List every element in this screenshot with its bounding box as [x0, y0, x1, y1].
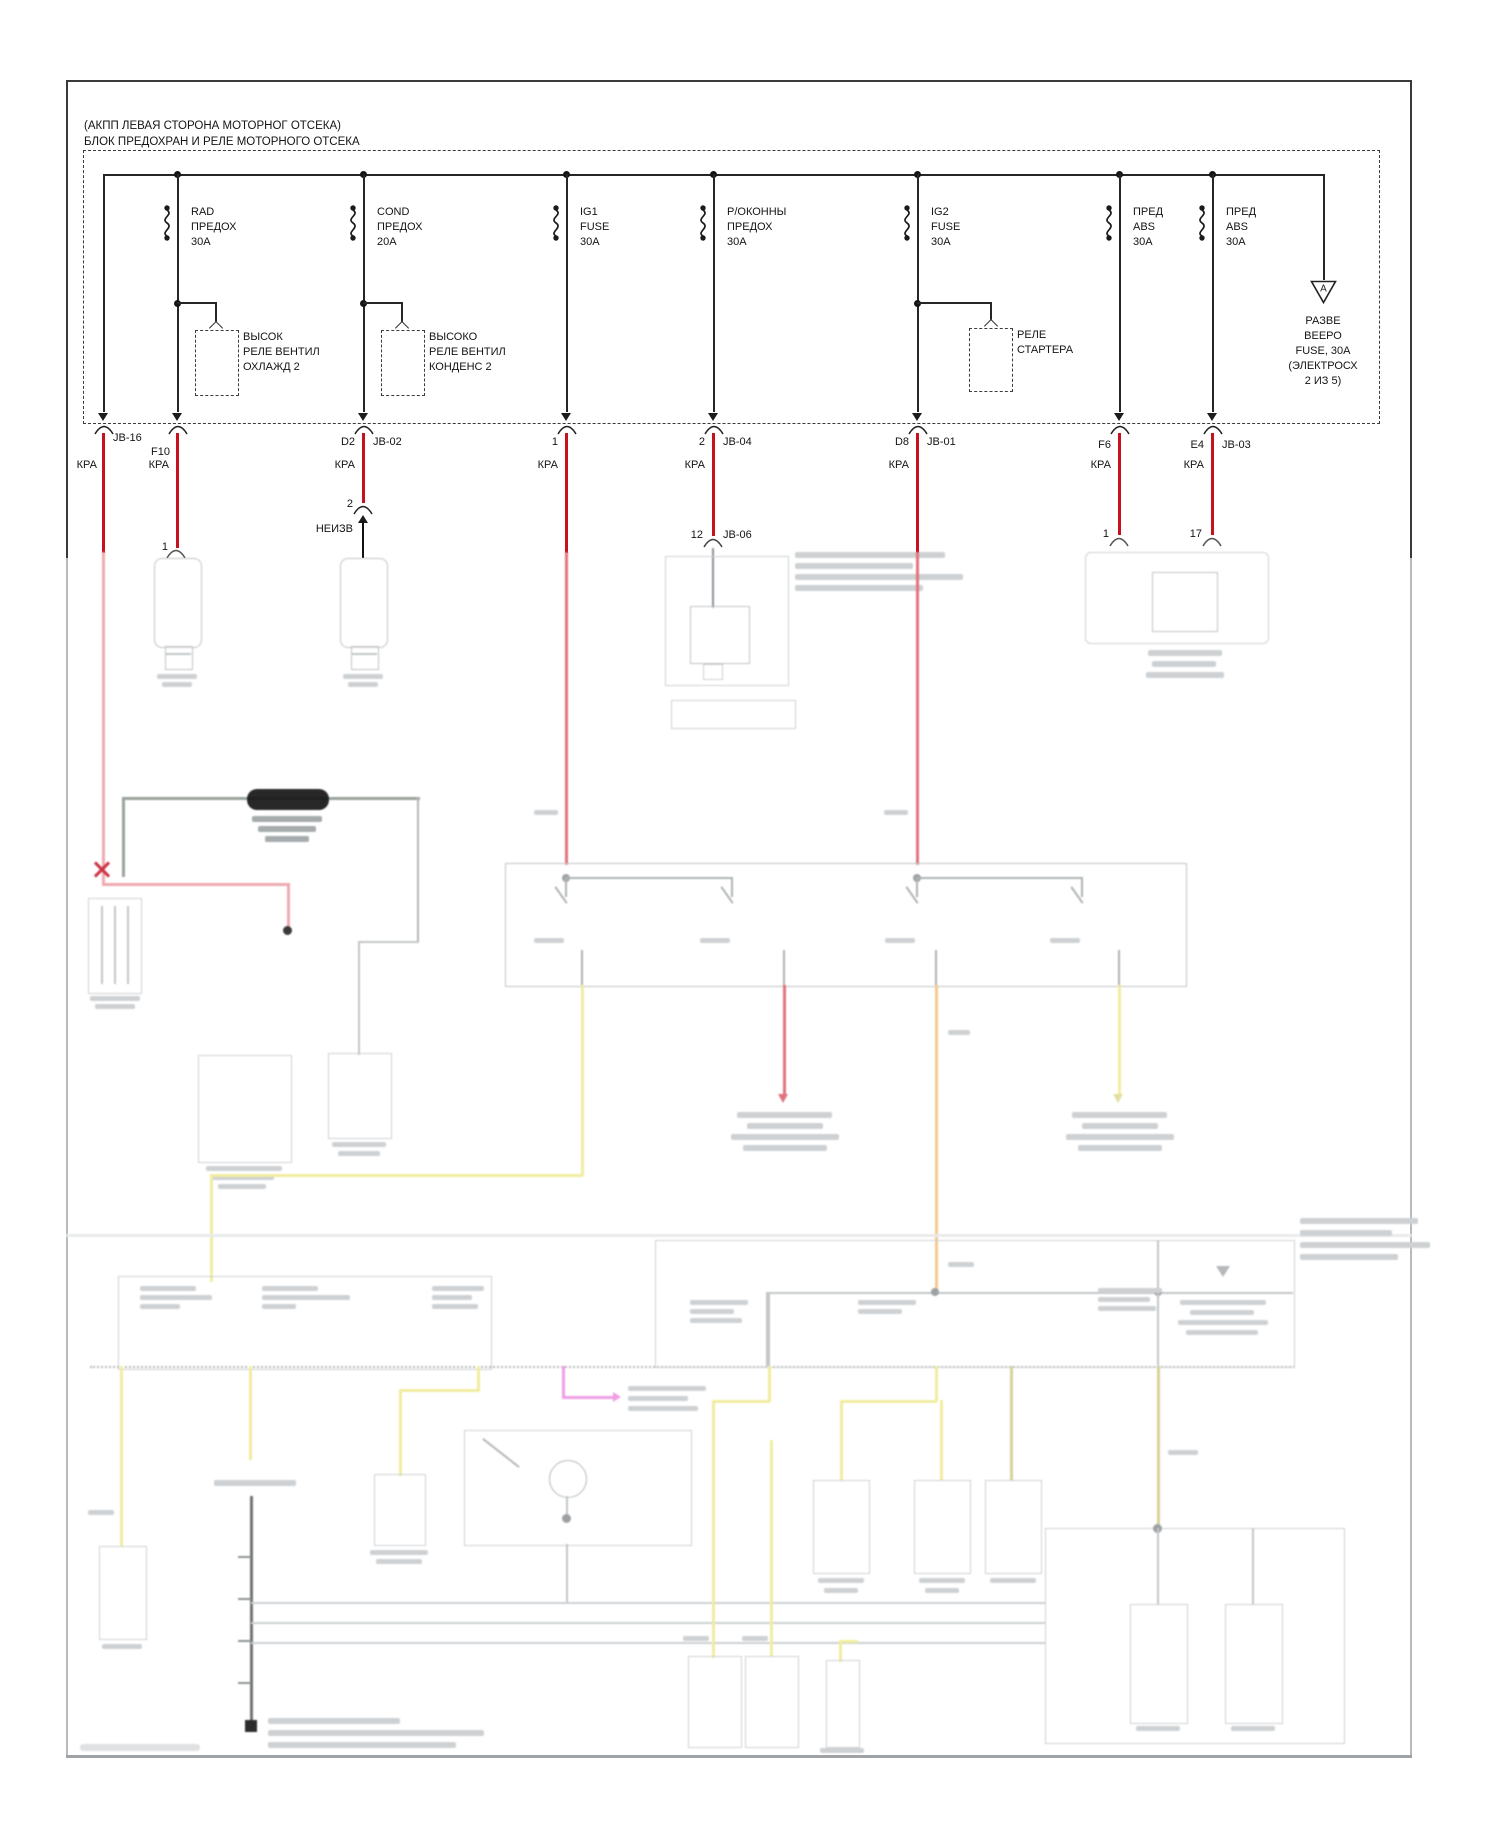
faded-text — [268, 1718, 400, 1724]
faded-text — [731, 1134, 839, 1140]
faded-text — [218, 1184, 266, 1189]
faded-text — [1098, 1288, 1162, 1293]
faded-wire-dark — [417, 797, 419, 943]
faded-text — [1072, 1112, 1167, 1118]
faded-junction-dot — [931, 1288, 939, 1296]
faded-component-box — [826, 1660, 860, 1748]
faded-component-base — [351, 646, 379, 670]
faded-text — [820, 1748, 864, 1753]
faded-wire — [251, 1642, 1045, 1644]
faded-text — [690, 1300, 748, 1305]
faded-text — [795, 552, 945, 558]
faded-line — [101, 906, 103, 984]
faded-ground-terminal — [245, 1720, 257, 1732]
faded-wire — [1252, 1528, 1254, 1604]
faded-text — [1148, 650, 1222, 656]
faded-text — [747, 1123, 823, 1129]
faded-wire-olive — [1010, 1366, 1013, 1480]
faded-text — [162, 682, 192, 687]
faded-text — [432, 1286, 484, 1291]
faded-text — [1300, 1242, 1430, 1248]
faded-component-assembly — [1045, 1528, 1345, 1744]
faded-text — [1078, 1145, 1162, 1151]
faded-text — [628, 1406, 698, 1411]
faded-component-lamp — [1130, 1604, 1188, 1724]
faded-text — [262, 1295, 350, 1300]
faded-text — [343, 674, 383, 679]
faded-wire-pink-red — [287, 883, 290, 929]
faded-text — [262, 1286, 318, 1291]
faded-wire-yellow — [712, 1400, 770, 1403]
faded-text — [1190, 1310, 1254, 1315]
faded-tick — [238, 1682, 251, 1684]
faded-text — [628, 1386, 706, 1391]
wiring-diagram-page: (АКПП ЛЕВАЯ СТОРОНА МОТОРНОГ ОТСЕКА) БЛО… — [0, 0, 1500, 1828]
faded-wire — [581, 950, 583, 985]
faded-wire-yellow — [768, 1366, 771, 1402]
faded-text — [1082, 1123, 1158, 1129]
faded-component-bulb — [154, 558, 202, 648]
faded-wire-dark — [122, 797, 125, 877]
faded-text — [1168, 1450, 1198, 1455]
faded-wire — [566, 877, 732, 879]
faded-diagram-region — [0, 0, 1500, 1828]
faded-text — [742, 1636, 768, 1641]
faded-text — [700, 938, 730, 943]
faded-ground-arrow — [1216, 1266, 1230, 1277]
faded-component-bulb — [340, 558, 388, 648]
faded-switch — [731, 877, 733, 897]
faded-text — [628, 1396, 688, 1401]
faded-text — [140, 1295, 212, 1300]
faded-wire — [251, 1602, 1045, 1604]
faded-text — [140, 1304, 180, 1309]
faded-component-box — [374, 1474, 426, 1546]
faded-wire — [251, 1622, 1045, 1624]
faded-component-box — [198, 1055, 292, 1163]
faded-text — [1146, 672, 1224, 678]
faded-text — [534, 810, 558, 815]
faded-wire-pink-red — [102, 552, 105, 886]
faded-arrow — [613, 1392, 621, 1402]
faded-text — [206, 1166, 282, 1171]
faded-line — [114, 906, 116, 984]
faded-text — [102, 1644, 142, 1649]
faded-text — [1098, 1306, 1156, 1311]
faded-text — [885, 938, 915, 943]
faded-tick — [238, 1556, 251, 1558]
faded-text — [737, 1112, 832, 1118]
faded-text — [252, 816, 322, 822]
faded-component-lamp — [745, 1656, 799, 1748]
faded-text — [795, 585, 923, 591]
faded-wire-yellow — [210, 1174, 583, 1177]
faded-switch — [1081, 877, 1083, 897]
faded-wire — [1157, 1240, 1159, 1366]
faded-wire-yellow — [399, 1389, 402, 1476]
faded-wire-dark — [250, 1496, 253, 1726]
faded-wire-yellow — [210, 1174, 213, 1282]
faded-text — [690, 1309, 734, 1314]
faded-wire — [766, 1292, 1293, 1294]
faded-text — [990, 1578, 1036, 1583]
faded-wire-pink — [562, 1366, 565, 1399]
faded-text — [214, 1480, 296, 1486]
faded-wire-yellow — [120, 1366, 123, 1546]
faded-text — [1180, 1300, 1266, 1305]
faded-text — [432, 1304, 478, 1309]
faded-band — [66, 1234, 1412, 1237]
faded-wire — [358, 941, 419, 943]
faded-line — [165, 653, 191, 655]
faded-text — [1050, 938, 1080, 943]
faded-arrow — [778, 1094, 788, 1103]
faded-text — [1178, 1320, 1268, 1325]
faded-text — [925, 1588, 959, 1593]
faded-text — [1136, 1726, 1180, 1731]
faded-text — [140, 1286, 196, 1291]
faded-text — [1186, 1330, 1258, 1335]
faded-line — [127, 906, 129, 984]
faded-text — [795, 574, 963, 580]
faded-wire — [566, 1544, 568, 1604]
faded-component-base — [165, 646, 193, 670]
faded-wire-yellow — [940, 1400, 943, 1480]
faded-text — [795, 563, 913, 569]
faded-wire-yellow — [399, 1389, 480, 1392]
faded-text — [1066, 1134, 1174, 1140]
faded-wire — [935, 950, 937, 985]
faded-text — [338, 1151, 380, 1156]
faded-bar — [80, 1744, 200, 1751]
faded-text — [858, 1300, 916, 1305]
faded-text — [534, 938, 564, 943]
faded-wire-yellow — [840, 1400, 843, 1480]
faded-text — [262, 1304, 296, 1309]
faded-wire-yellow — [249, 1366, 252, 1460]
faded-text — [258, 826, 316, 832]
faded-text — [348, 682, 378, 687]
faded-text — [743, 1145, 827, 1151]
faded-component-lamp — [1225, 1604, 1283, 1724]
faded-component-inner — [1152, 572, 1218, 632]
faded-text — [268, 1730, 484, 1736]
faded-wire — [768, 1292, 770, 1366]
faded-text — [88, 1510, 114, 1515]
faded-component-lamp — [688, 1656, 742, 1748]
faded-text — [690, 1318, 742, 1323]
faded-text — [268, 1742, 456, 1748]
faded-text — [432, 1295, 472, 1300]
faded-text — [683, 1636, 709, 1641]
faded-wire-olive — [1157, 1366, 1160, 1528]
faded-circle — [549, 1460, 587, 1498]
faded-text — [824, 1588, 858, 1593]
faded-text — [1300, 1230, 1392, 1236]
faded-text — [948, 1030, 970, 1035]
faded-junction-block — [505, 863, 1187, 987]
faded-component-lamp — [99, 1546, 147, 1640]
faded-wire-red — [783, 985, 786, 1095]
faded-component-motor — [690, 606, 750, 664]
faded-wire-yellow — [935, 1366, 938, 1402]
faded-wire-yellow — [770, 1440, 773, 1656]
faded-component-box — [985, 1480, 1042, 1574]
faded-tick — [238, 1598, 251, 1600]
faded-text — [332, 1142, 386, 1147]
faded-text — [858, 1309, 902, 1314]
faded-wire-yellow — [840, 1400, 937, 1403]
faded-text — [157, 674, 197, 679]
faded-label-chip — [671, 700, 796, 729]
faded-tick — [238, 1640, 251, 1642]
faded-text — [376, 1559, 422, 1564]
faded-text — [95, 1004, 135, 1009]
faded-text — [1098, 1297, 1150, 1302]
faded-switch — [916, 877, 918, 897]
faded-text — [90, 996, 140, 1001]
faded-wire — [783, 950, 785, 985]
faded-text — [1231, 1726, 1275, 1731]
faded-connector-blob — [247, 789, 329, 810]
faded-text — [1152, 661, 1216, 667]
faded-text — [1300, 1218, 1418, 1224]
faded-arrow — [1113, 1094, 1123, 1103]
faded-wire-pink — [562, 1396, 615, 1399]
faded-text — [884, 810, 908, 815]
faded-wire-yellow — [839, 1640, 842, 1662]
faded-text — [818, 1578, 864, 1583]
faded-component-box — [914, 1480, 971, 1574]
faded-text — [919, 1578, 965, 1583]
faded-text — [370, 1550, 428, 1555]
faded-text — [265, 836, 309, 842]
faded-wire — [1157, 1528, 1159, 1604]
faded-switch — [565, 877, 567, 897]
faded-component-box — [328, 1053, 392, 1139]
faded-terminal-dot — [283, 926, 292, 935]
faded-wire-yellow — [712, 1400, 715, 1658]
faded-wire-red — [916, 552, 919, 865]
faded-line — [351, 653, 377, 655]
faded-wire — [1118, 950, 1120, 985]
faded-text — [1300, 1254, 1398, 1260]
faded-component-stub — [703, 664, 723, 680]
faded-wire-yellow — [581, 985, 584, 1176]
faded-wire — [917, 877, 1082, 879]
faded-wire-pink-red — [102, 883, 290, 886]
faded-wire-red — [565, 552, 568, 865]
faded-wire — [358, 941, 360, 1055]
faded-junction-dot — [562, 1514, 571, 1523]
faded-component-box — [813, 1480, 870, 1574]
faded-wire-yellow — [1118, 985, 1121, 1095]
